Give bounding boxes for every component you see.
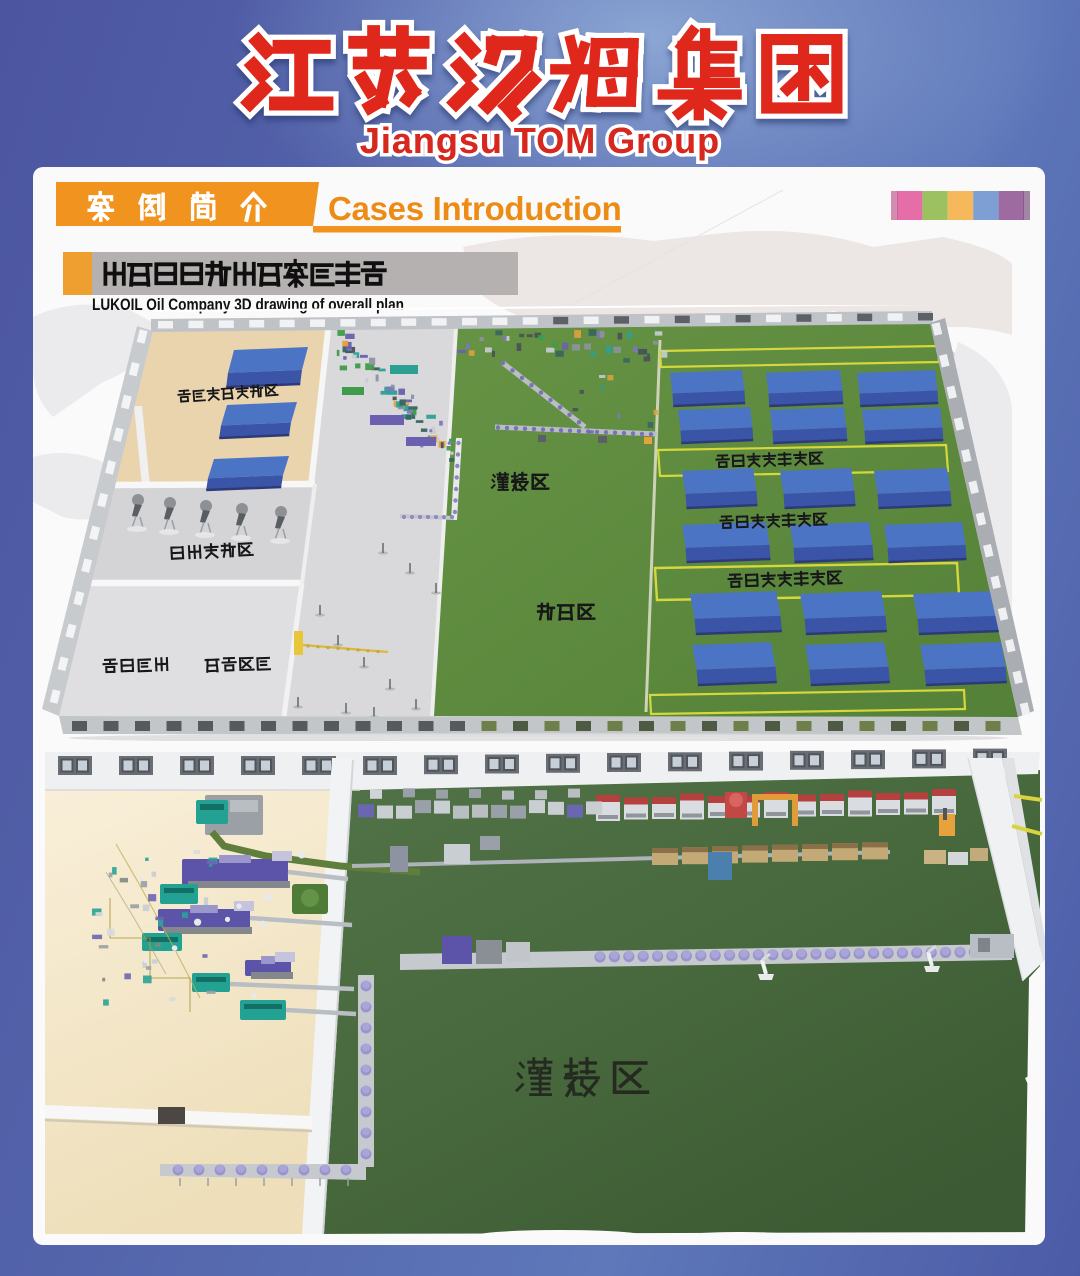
svg-text:Jiangsu TOM Group: Jiangsu TOM Group [360, 120, 720, 161]
svg-text:Cases Introduction: Cases Introduction [328, 190, 621, 227]
